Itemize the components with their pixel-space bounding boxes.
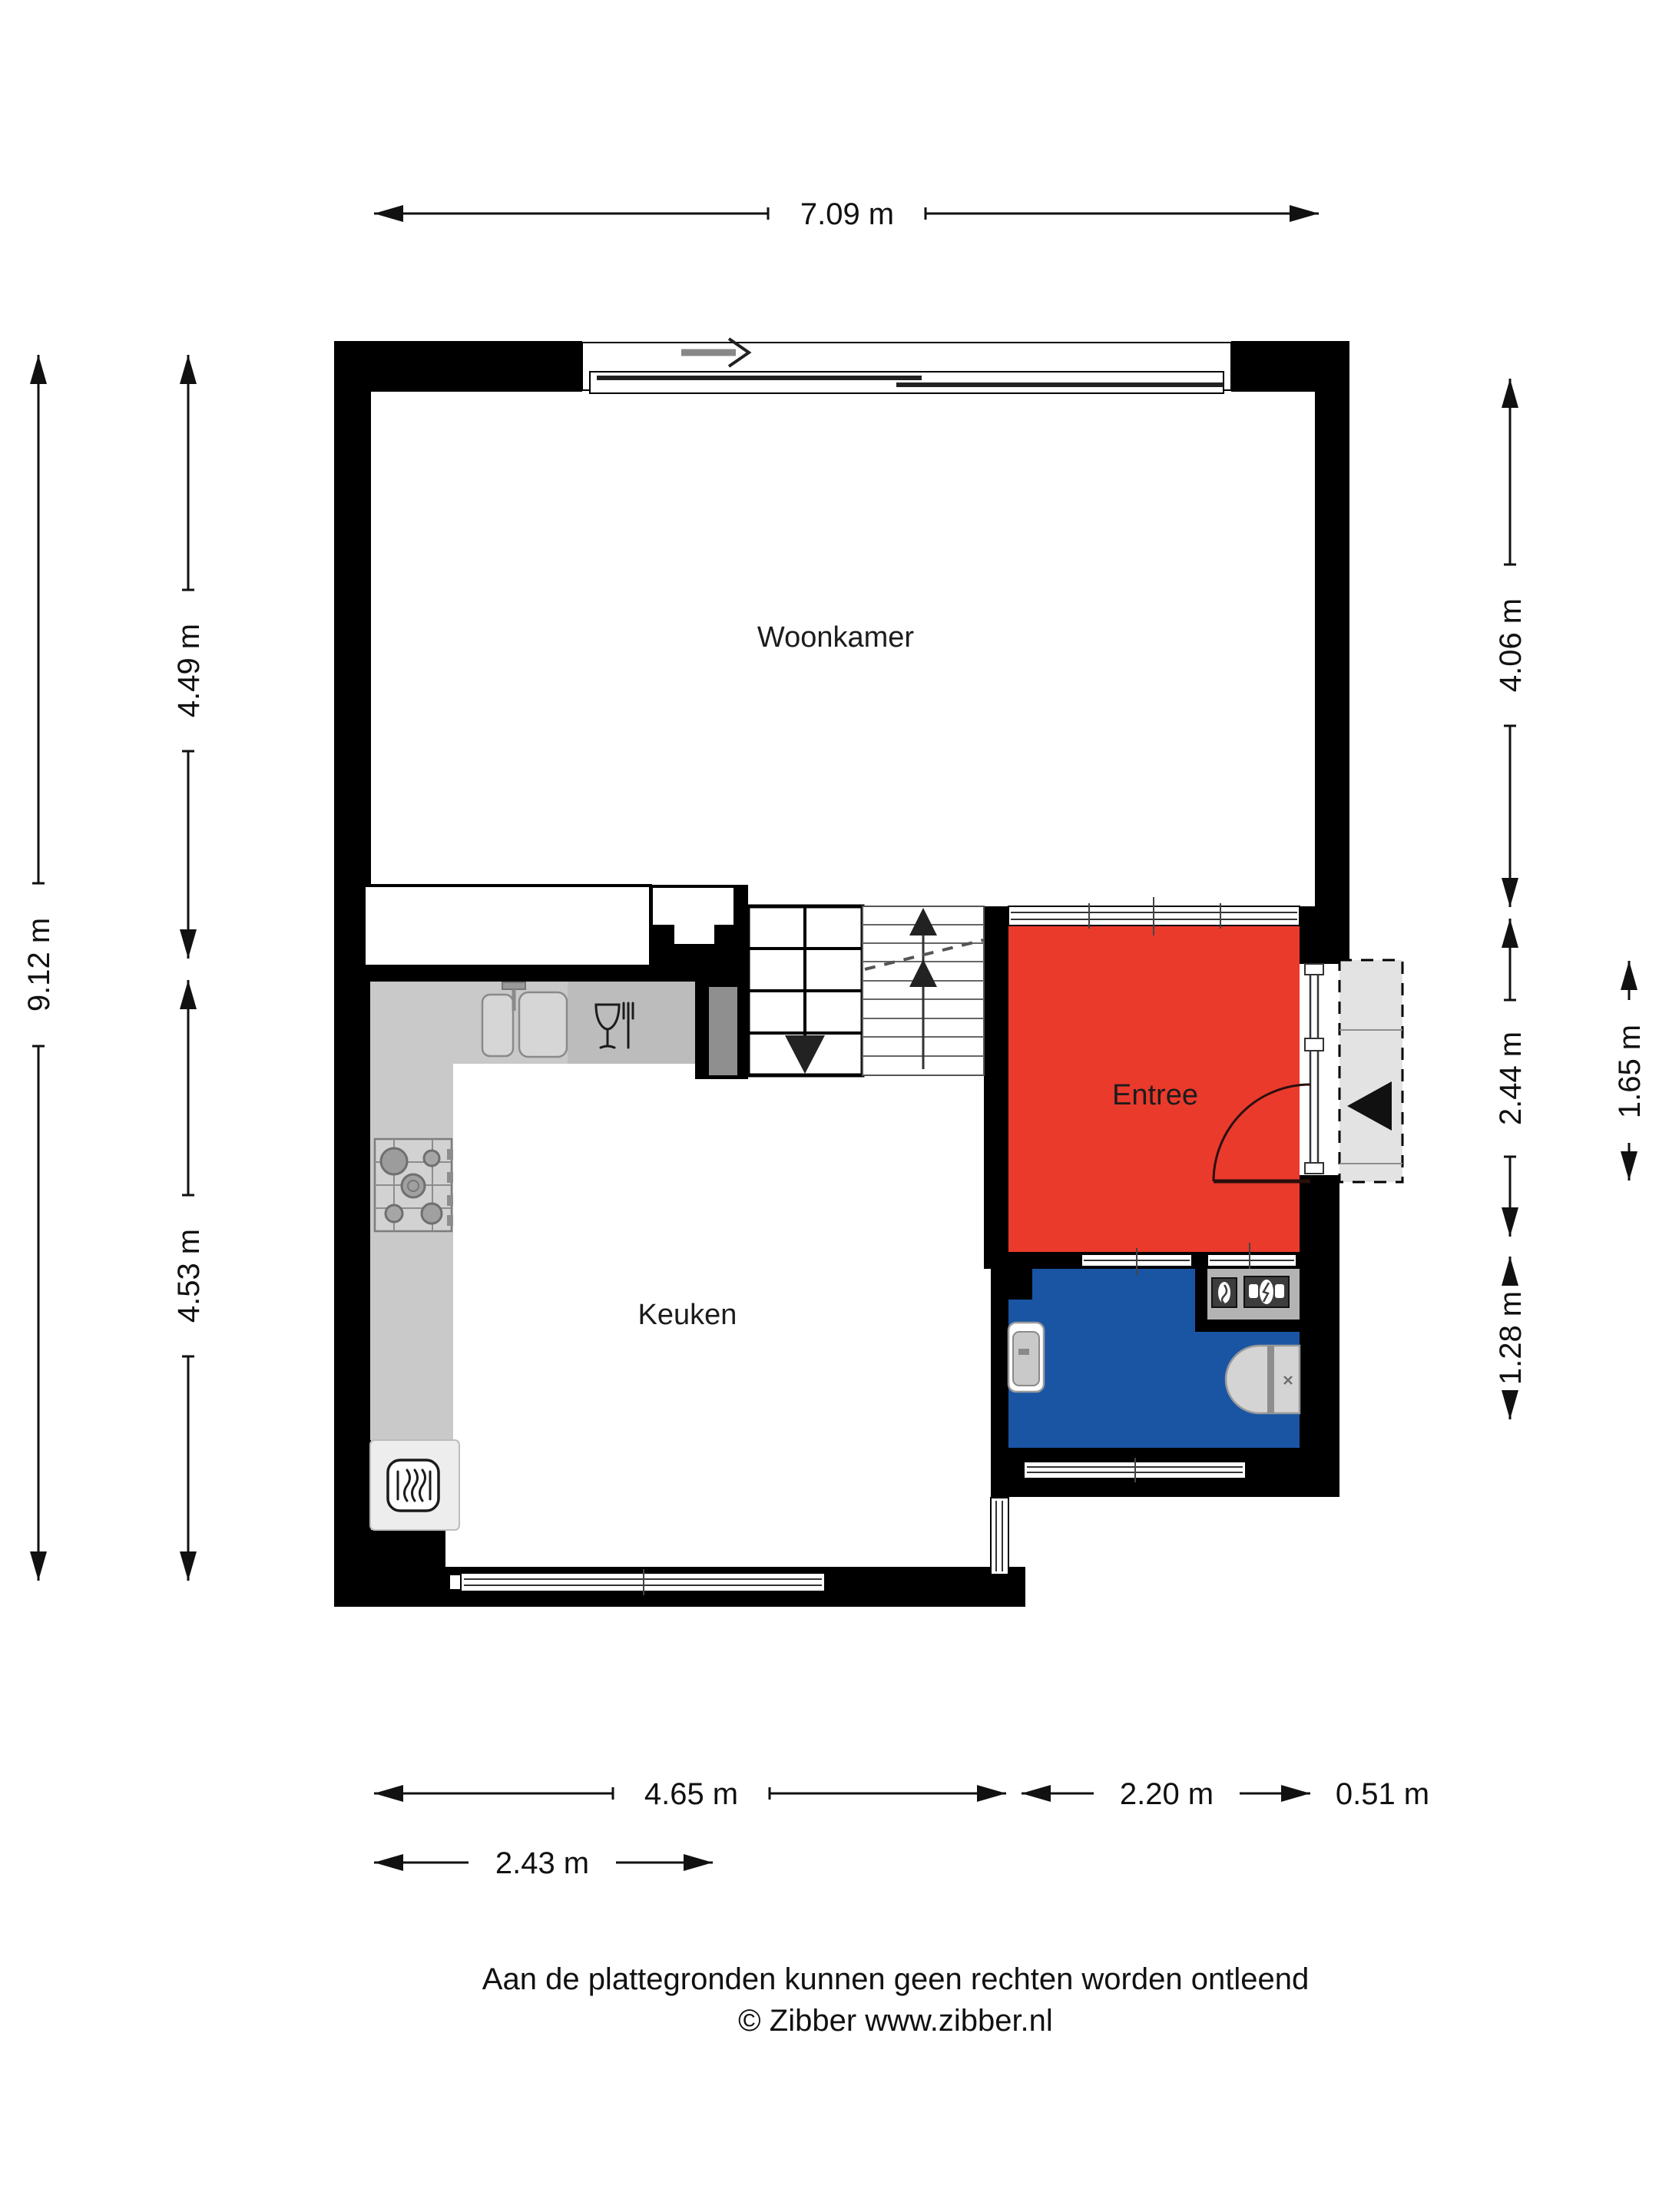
gas-meter-icon <box>1212 1278 1237 1307</box>
entrance-porch <box>1339 960 1402 1182</box>
dim-label: 7.09 m <box>800 197 894 231</box>
heater-cabinet <box>370 1440 459 1530</box>
wall-niche-stub <box>1195 1269 1207 1320</box>
faucet-base <box>502 982 525 989</box>
wall-toilet-left-step <box>991 1269 1032 1300</box>
dim-label: 2.20 m <box>1120 1777 1214 1811</box>
dim-bottom-counter: 2.43 m <box>374 1846 713 1880</box>
stove-knob <box>447 1215 453 1226</box>
basin-tap <box>1018 1349 1029 1355</box>
counter-left <box>370 1064 453 1440</box>
toilet-icon <box>1226 1346 1300 1413</box>
dim-right-porch: 1.65 m <box>1613 961 1647 1181</box>
burner <box>402 1174 425 1197</box>
under-stairs-door <box>709 987 737 1075</box>
footer-copyright: © Zibber www.zibber.nl <box>738 2004 1053 2038</box>
door-frame-block <box>1305 1038 1323 1051</box>
dim-bottom-entree: 2.20 m <box>1022 1777 1310 1811</box>
dim-label: 1.28 m <box>1494 1291 1528 1385</box>
sink-bowl-large <box>519 992 567 1057</box>
stairs <box>748 906 984 1075</box>
footer: Aan de plattegronden kunnen geen rechten… <box>482 1962 1309 2038</box>
kitchen-window <box>449 1569 825 1595</box>
wall-right-junction <box>1300 906 1349 964</box>
door-frame-block <box>1305 964 1323 975</box>
dim-label: 4.65 m <box>644 1777 738 1811</box>
wall-mid-left <box>363 966 651 982</box>
dim-left-lower: 4.53 m <box>172 980 206 1581</box>
dim-label: 4.53 m <box>172 1229 206 1323</box>
wall-right-upper <box>1315 341 1349 948</box>
meter-dial <box>1260 1280 1273 1304</box>
dim-label: 4.49 m <box>172 624 206 717</box>
floor-plan: Woonkamer Keuken Entree 7.09 m 9.12 m 4. <box>0 0 1659 2212</box>
label-keuken: Keuken <box>638 1299 737 1331</box>
burner <box>386 1205 402 1222</box>
dim-right-upper: 4.06 m <box>1494 379 1528 907</box>
stairs-down-flight <box>748 906 863 1075</box>
meter-window <box>1275 1284 1284 1298</box>
toilet-seat-line <box>1267 1346 1274 1413</box>
window-sill <box>449 1575 461 1590</box>
door-frame-block <box>1305 1163 1323 1174</box>
dim-label: 2.43 m <box>495 1846 589 1880</box>
dim-left-total: 9.12 m <box>22 355 56 1581</box>
dim-label: 1.65 m <box>1613 1025 1647 1118</box>
electric-meter-icon <box>1244 1277 1289 1307</box>
sliding-window-top <box>582 339 1231 393</box>
dim-bottom-porch: 0.51 m <box>1336 1777 1429 1811</box>
dim-label: 2.44 m <box>1494 1031 1528 1125</box>
hand-basin-icon <box>1008 1323 1044 1392</box>
window-frame <box>991 1498 1008 1575</box>
wall-top-left <box>334 341 582 392</box>
burner <box>422 1204 442 1224</box>
burner <box>381 1148 407 1174</box>
stove-icon <box>375 1139 453 1231</box>
dim-top-width: 7.09 m <box>374 197 1319 231</box>
toilet-window <box>1024 1458 1246 1482</box>
door-opening <box>1300 964 1339 1175</box>
label-woonkamer: Woonkamer <box>757 621 915 654</box>
meter-window <box>1249 1284 1258 1298</box>
kitchen-east-window <box>991 1498 1008 1575</box>
stove-knob <box>447 1172 453 1183</box>
footer-disclaimer: Aan de plattegronden kunnen geen rechten… <box>482 1962 1309 1996</box>
stove-knob <box>447 1195 453 1206</box>
burner <box>424 1151 439 1166</box>
wall-niche-band <box>1195 1320 1300 1332</box>
stove-knob <box>447 1149 453 1160</box>
dim-right-toilet: 1.28 m <box>1494 1257 1528 1419</box>
cupboard <box>364 886 651 966</box>
dim-label: 9.12 m <box>22 918 56 1012</box>
label-entree: Entree <box>1112 1079 1198 1111</box>
wall-kitchen-east <box>984 906 1008 1269</box>
stairs-up-flight <box>863 906 984 1075</box>
dim-label: 4.06 m <box>1494 598 1528 692</box>
dim-bottom-kitchen: 4.65 m <box>374 1777 1006 1811</box>
kitchen-fixtures <box>370 982 695 1530</box>
sink-bowl-small <box>482 995 513 1056</box>
wall-kitchen-stub <box>370 1530 445 1567</box>
dim-right-entree: 2.44 m <box>1494 919 1528 1237</box>
dim-left-upper: 4.49 m <box>172 355 206 959</box>
basin-inner <box>1013 1332 1039 1386</box>
floor-plan-page: Woonkamer Keuken Entree 7.09 m 9.12 m 4. <box>0 0 1659 2212</box>
porch-slab <box>1339 960 1402 1182</box>
counter-dishwasher <box>568 982 695 1064</box>
